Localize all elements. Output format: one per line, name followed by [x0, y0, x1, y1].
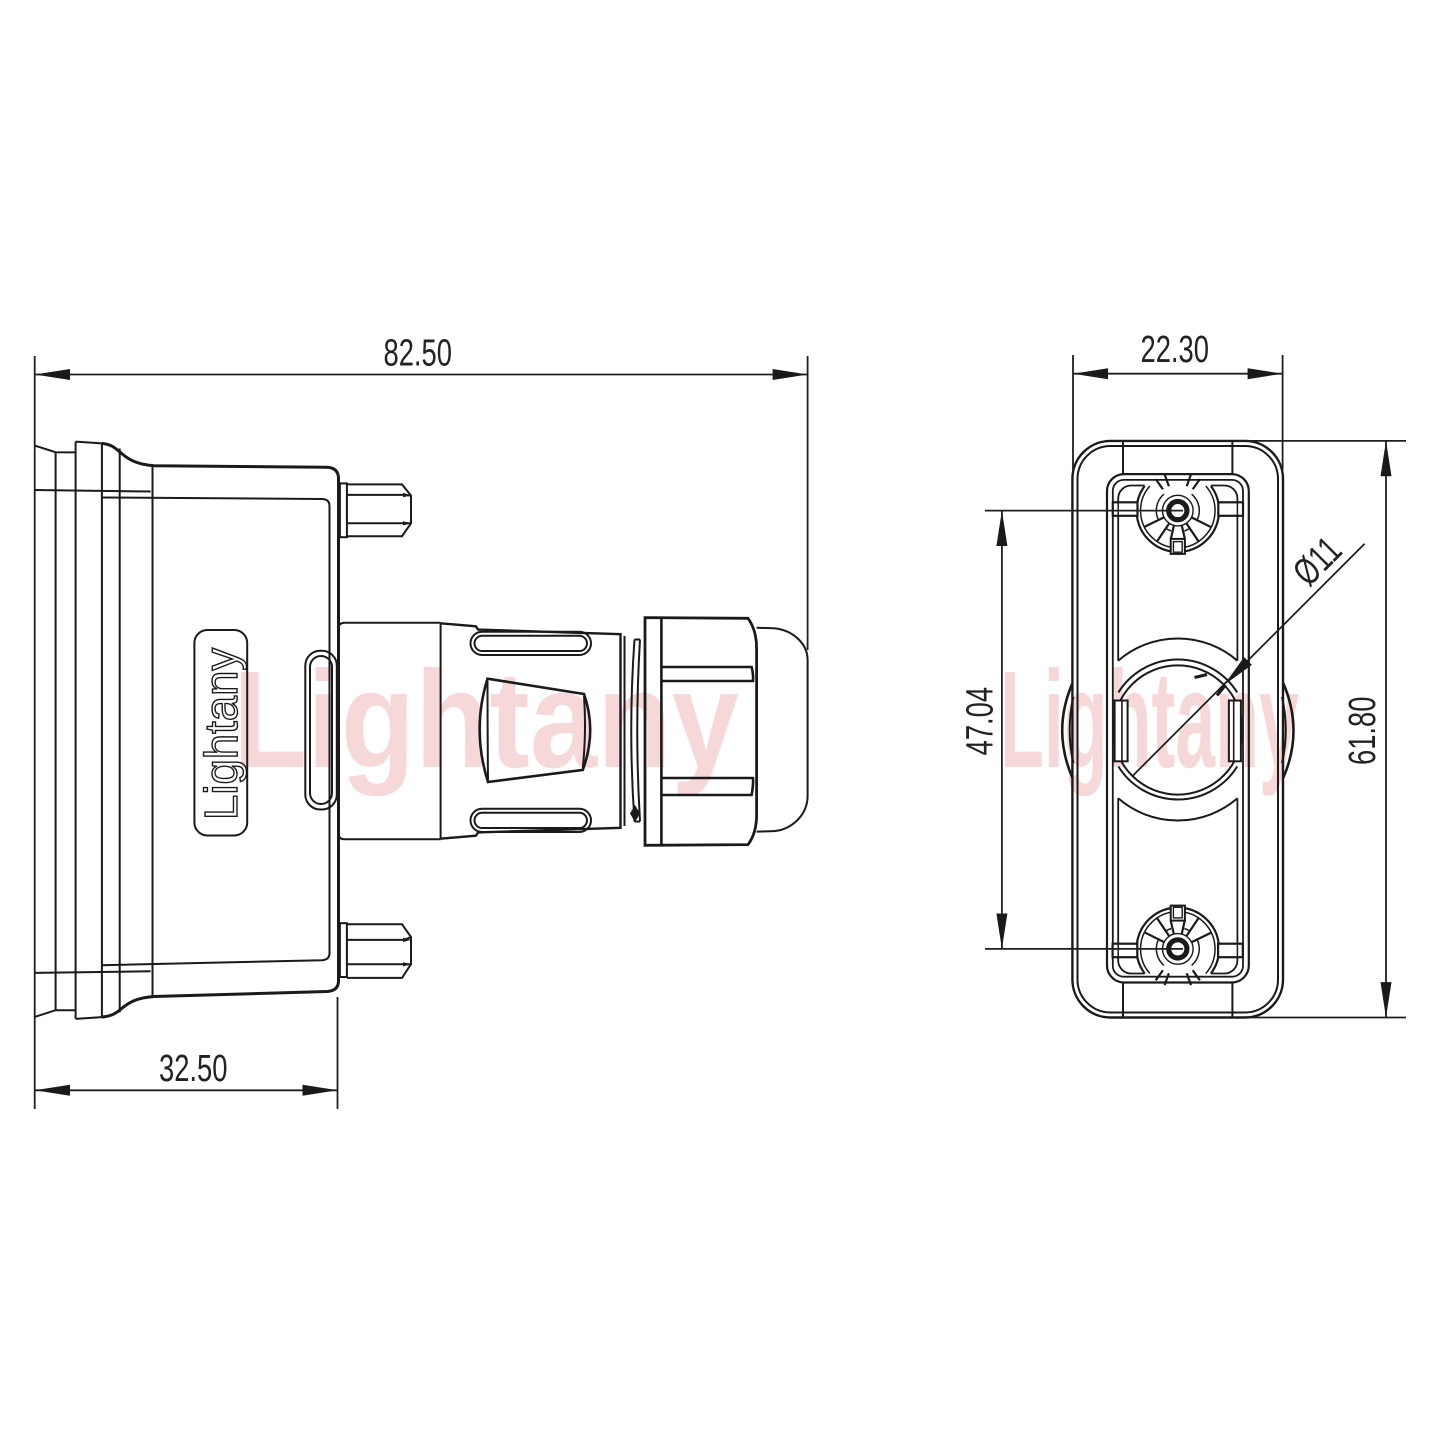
svg-text:22.30: 22.30 [1141, 329, 1209, 371]
svg-text:82.50: 82.50 [384, 332, 452, 374]
svg-text:32.50: 32.50 [159, 1048, 227, 1090]
svg-text:61.80: 61.80 [1342, 697, 1384, 765]
svg-text:47.04: 47.04 [959, 687, 1001, 755]
svg-text:Lightany: Lightany [196, 648, 247, 820]
